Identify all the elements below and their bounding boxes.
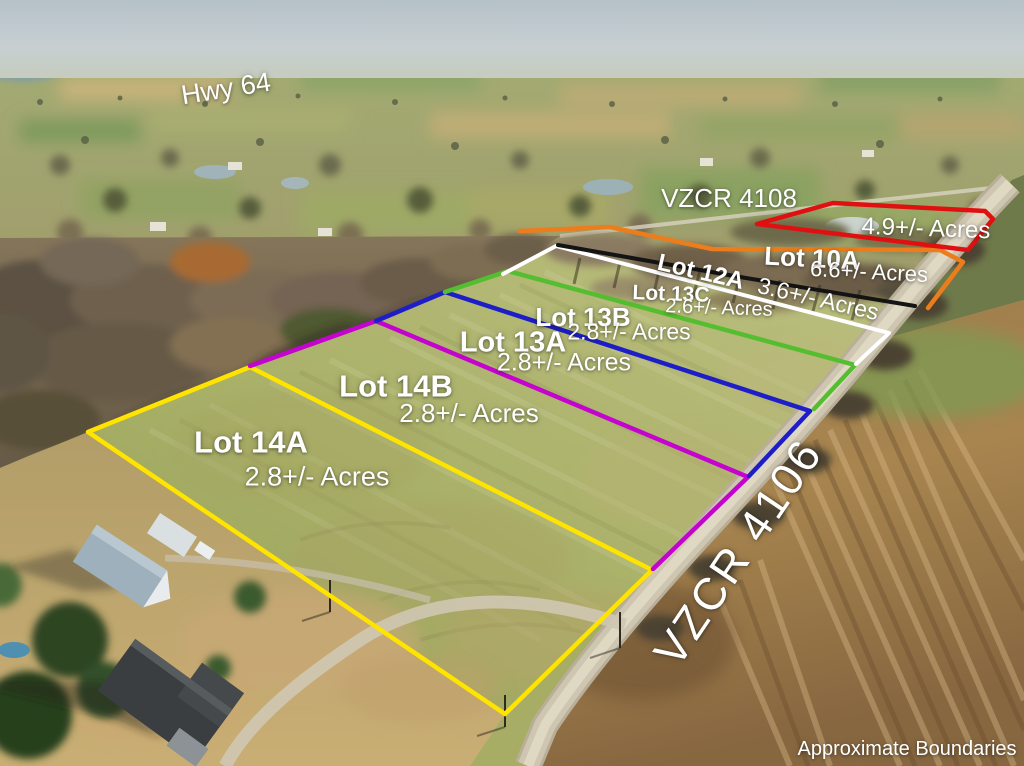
aerial-photo [0, 0, 1024, 766]
lot-14b-label: Lot 14B [339, 371, 453, 402]
lot-14a-label: Lot 14A [194, 427, 308, 458]
disclaimer-label: Approximate Boundaries [797, 739, 1016, 759]
road-label-vzcr-4108: VZCR 4108 [661, 185, 797, 211]
lot-14b-acreage: 2.8+/- Acres [399, 400, 538, 426]
lot-10a-acreage: 6.6+/- Acres [809, 258, 928, 286]
lot-13c-acreage: 2.6+/- Acres [665, 296, 773, 320]
red-tract-acreage: 4.9+/- Acres [861, 215, 990, 243]
horizon-haze [0, 0, 1024, 78]
lot-14a-acreage: 2.8+/- Acres [245, 464, 390, 491]
aerial-lot-map: Hwy 64 VZCR 4108 4.9+/- Acres Lot 10A 6.… [0, 0, 1024, 766]
lot-13b-acreage: 2.8+/- Acres [567, 321, 690, 344]
lot-13a-acreage: 2.8+/- Acres [497, 351, 631, 376]
